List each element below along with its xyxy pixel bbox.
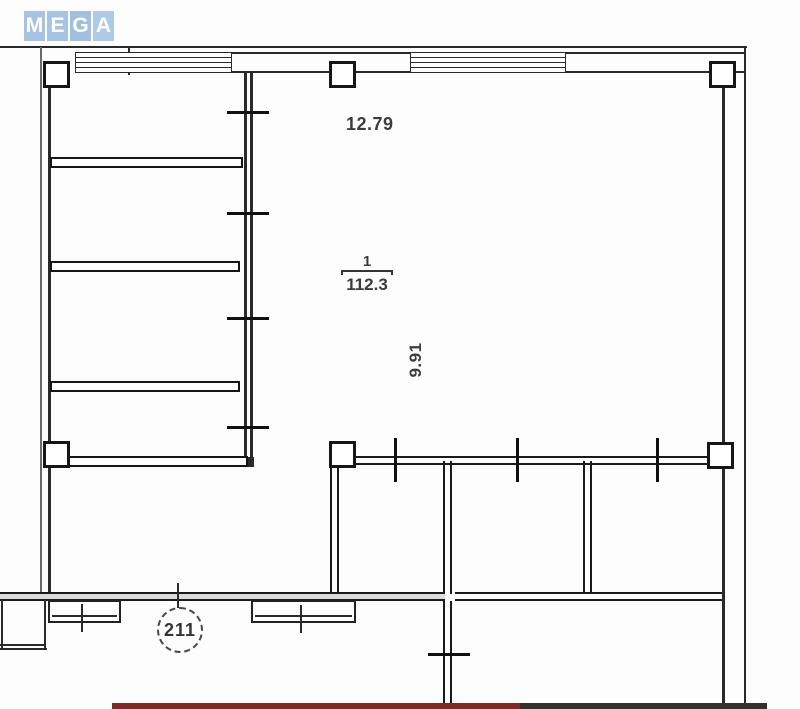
partition-wall-line (244, 72, 247, 466)
column (43, 441, 70, 468)
dimension-tick (428, 653, 470, 656)
badge-leader-tick (177, 583, 179, 608)
dimension-tick (394, 438, 397, 482)
dimension-tick (227, 317, 269, 320)
depth-dimension-label: 9.91 (406, 338, 426, 382)
window-sill (48, 600, 121, 623)
column (709, 61, 736, 88)
window-sill-line (255, 615, 352, 617)
partition-wall-line (250, 72, 253, 466)
wall-top-outer (0, 46, 747, 48)
column (329, 441, 356, 468)
dimension-tick (227, 111, 269, 114)
floor-plan: M E G A (0, 0, 800, 709)
wall-right-outer (744, 46, 746, 709)
logo-tile-m: M (24, 11, 45, 41)
mega-logo: M E G A (24, 11, 114, 41)
wall-right-inner (722, 86, 725, 709)
interior-wall (330, 468, 339, 594)
column (707, 442, 734, 469)
bay-wall (0, 644, 46, 646)
logo-tile-a: A (93, 11, 114, 41)
window-glass-line (411, 67, 565, 68)
width-dimension-label: 12.79 (346, 114, 394, 135)
unit-badge-number: 211 (164, 620, 196, 641)
dimension-tick (656, 438, 659, 482)
logo-letter: M (26, 14, 44, 38)
window-hatch-left (75, 52, 232, 73)
bottom-scan-artifact-dark (520, 703, 767, 709)
room-area: 112.3 (336, 276, 398, 293)
logo-letter: G (72, 14, 88, 38)
interior-wall (583, 461, 592, 593)
logo-tile-e: E (47, 11, 68, 41)
bay-wall (44, 600, 46, 648)
wall-left-outer (40, 47, 42, 597)
bottom-scan-artifact-red (112, 703, 520, 709)
corridor-wall (455, 592, 722, 601)
shelf-bar (50, 381, 240, 392)
room-area-label: 1 112.3 (336, 254, 398, 293)
window-glass-line (411, 57, 565, 58)
bay-wall (0, 648, 47, 650)
dimension-tick (81, 604, 83, 632)
window-glass-line (411, 62, 565, 63)
dimension-tick (227, 426, 269, 429)
room-number: 1 (336, 254, 398, 269)
dimension-tick (300, 605, 302, 633)
left-room-bottom-wall (68, 456, 248, 467)
interior-wall-lower (443, 601, 452, 703)
window-glass-line (76, 62, 231, 63)
logo-letter: E (50, 14, 64, 38)
window-glass-line (76, 57, 231, 58)
shelf-bar (50, 157, 243, 168)
bay-wall (1, 600, 3, 650)
column (43, 61, 70, 88)
window-glass-line (76, 67, 231, 68)
window-sill (251, 600, 356, 623)
logo-tile-g: G (70, 11, 91, 41)
interior-wall (443, 461, 452, 594)
column (329, 61, 356, 88)
logo-letter: A (96, 14, 111, 38)
unit-badge-circle: 211 (157, 607, 203, 653)
window-hatch-middle (410, 52, 566, 73)
wall-left-inner (48, 64, 51, 595)
dimension-tick (227, 212, 269, 215)
window-sill-line (52, 615, 117, 617)
shelf-bar (50, 261, 240, 272)
dimension-tick (516, 438, 519, 482)
